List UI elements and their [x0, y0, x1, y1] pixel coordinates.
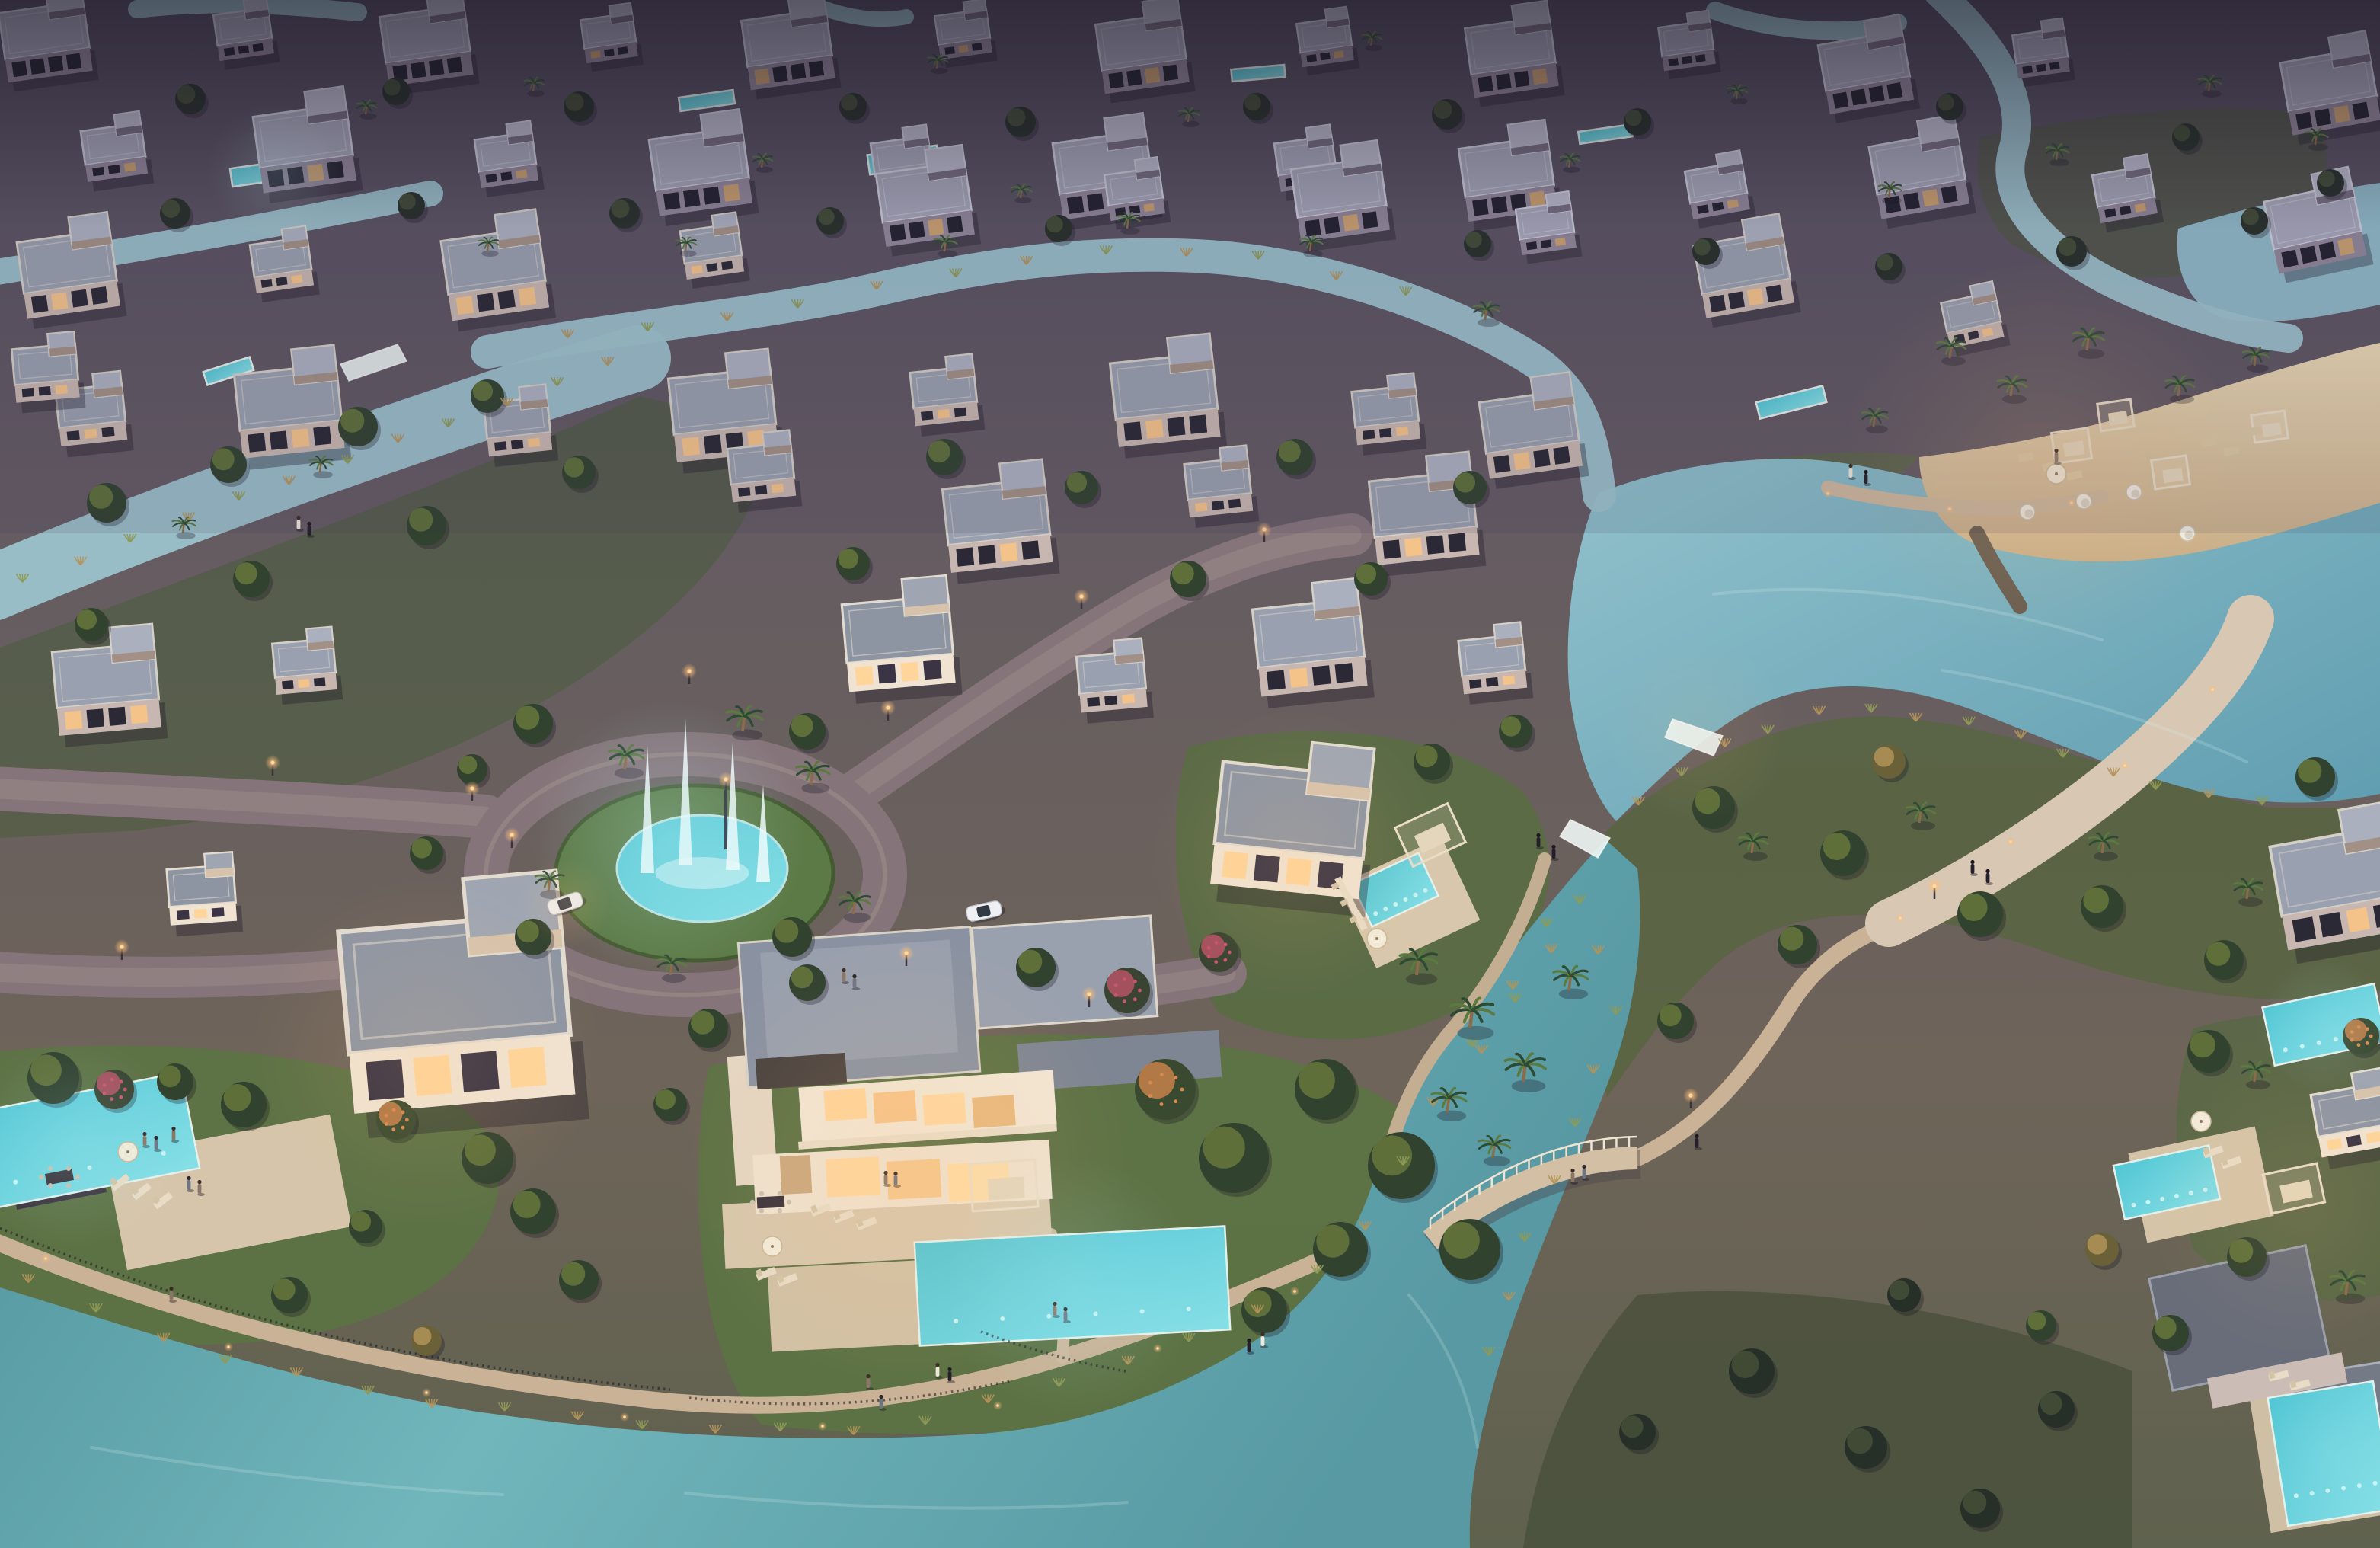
villa-window [108, 707, 126, 726]
villa-window [1335, 663, 1354, 683]
bollard-light [1293, 1290, 1296, 1293]
tree-highlight [2088, 1234, 2107, 1254]
bollard-light [2123, 764, 2126, 767]
palm-shadow [2094, 852, 2118, 861]
street-lamp [470, 786, 474, 790]
villa-window [130, 705, 149, 724]
villa-window [923, 660, 942, 680]
tree-highlight [691, 1011, 714, 1035]
tree-highlight [656, 1089, 676, 1109]
person-shadow [169, 1300, 177, 1303]
bollard-light [2009, 840, 2012, 843]
tree-highlight [1660, 1004, 1682, 1026]
person-head [1695, 1134, 1698, 1138]
bollard-light [821, 1425, 824, 1428]
person-shadow [1247, 1351, 1254, 1354]
tree-highlight [1890, 1280, 1909, 1300]
palm-shadow [1911, 821, 1935, 830]
person [1986, 873, 1990, 883]
palm-shadow [844, 913, 871, 923]
tree-highlight [235, 562, 257, 584]
villa-window [1122, 694, 1135, 704]
person [170, 1291, 174, 1300]
tree-highlight [458, 756, 477, 774]
person-shadow [1570, 1182, 1578, 1185]
villa-window [1021, 540, 1040, 559]
person-shadow [1985, 882, 1993, 885]
person-head [169, 1287, 173, 1291]
person-head [1582, 1165, 1586, 1169]
blossom [1133, 997, 1137, 1001]
person-head [1536, 833, 1540, 837]
person [1583, 1169, 1586, 1179]
bollard-light [623, 1415, 626, 1418]
blossom [1133, 980, 1137, 983]
tree-highlight [1299, 1062, 1335, 1099]
palm-shadow [801, 783, 829, 794]
tree-highlight [2083, 888, 2109, 913]
street-lamp [270, 760, 274, 764]
tree-highlight [561, 1262, 585, 1286]
villa-window [1426, 535, 1445, 554]
person [198, 1184, 202, 1194]
tree-highlight [2040, 1393, 2062, 1415]
blossom [1138, 989, 1142, 993]
villa-window [282, 680, 294, 689]
villa-window [1312, 665, 1331, 685]
villa-window [1289, 667, 1308, 687]
blossom [1114, 983, 1118, 987]
tree-highlight [1316, 1225, 1349, 1258]
blossom [1160, 1102, 1164, 1106]
tree-highlight [1107, 970, 1135, 997]
person-shadow [1536, 846, 1544, 849]
villa-window [177, 910, 190, 920]
villa-window [978, 545, 996, 564]
tree-highlight [2155, 1316, 2177, 1339]
villa-window [1503, 676, 1515, 686]
person-head [1260, 1332, 1264, 1336]
tree-highlight [1960, 894, 1988, 921]
person [1537, 837, 1541, 847]
person-shadow [197, 1193, 205, 1196]
street-lamp [687, 669, 691, 673]
palm-shadow [1484, 1156, 1510, 1166]
person-head [1970, 860, 1974, 864]
villa-window [877, 664, 896, 683]
street-lamp [1688, 1093, 1692, 1097]
villa-window [1267, 670, 1286, 690]
blossom [1174, 1076, 1178, 1079]
person-head [197, 1180, 201, 1184]
person-shadow [1970, 873, 1978, 876]
blossom [1174, 1099, 1177, 1103]
tree-highlight [412, 838, 432, 858]
person [1552, 849, 1556, 859]
villa-window [1469, 679, 1481, 689]
villa-window [1000, 542, 1018, 561]
villa-window [956, 547, 974, 566]
villa-window [314, 677, 326, 686]
tree-highlight [2027, 1312, 2046, 1330]
ambient-glow [1607, 640, 1790, 823]
person [1695, 1138, 1699, 1148]
tree-highlight [1501, 716, 1521, 736]
tree-highlight [1443, 1222, 1480, 1259]
villa-window [1104, 696, 1117, 705]
person-head [1551, 845, 1555, 849]
person-head [187, 1176, 190, 1180]
person-head [879, 1395, 883, 1399]
villa-window [2319, 912, 2343, 937]
street-lamp [1087, 992, 1091, 996]
bollard-light [1899, 916, 1902, 920]
tree-highlight [224, 1084, 251, 1111]
street-lamp [886, 705, 890, 709]
person-shadow [187, 1189, 194, 1192]
blossom [1148, 1081, 1152, 1085]
blossom [1180, 1088, 1184, 1092]
palm-shadow [1406, 973, 1438, 985]
person [1248, 1342, 1251, 1352]
villa-window [1382, 539, 1401, 558]
tree-highlight [1963, 1491, 1986, 1514]
bollard-light [227, 1345, 230, 1348]
tree-highlight [1847, 1428, 1873, 1454]
palm-shadow [2238, 897, 2263, 907]
tree-highlight [77, 609, 97, 629]
person-shadow [879, 1408, 887, 1411]
person [1571, 1172, 1575, 1182]
palm-shadow [1512, 1079, 1546, 1092]
street-lamp [120, 945, 123, 948]
tree-highlight [1621, 1415, 1644, 1438]
bollard-light [44, 1257, 47, 1260]
person-shadow [1582, 1178, 1589, 1181]
tree-highlight [791, 715, 813, 737]
tree-highlight [1780, 927, 1803, 951]
bollard-light [425, 1391, 428, 1394]
tree-highlight [413, 1327, 431, 1345]
top-vignette [0, 0, 2380, 229]
tree-highlight [1874, 747, 1894, 766]
villa-window [1486, 677, 1498, 687]
villa-window [65, 711, 83, 730]
bollard-light [2211, 688, 2214, 691]
person-head [1985, 869, 1989, 873]
tree-highlight [1203, 1127, 1245, 1169]
villa-window [1087, 697, 1100, 707]
layer-atmosphere [0, 0, 2380, 533]
person [880, 1399, 883, 1409]
tree-highlight [1172, 562, 1194, 584]
tree-highlight [1732, 1351, 1759, 1378]
ambient-glow [943, 1156, 1202, 1415]
blossom [1123, 977, 1126, 981]
person-head [1570, 1169, 1574, 1172]
tree-highlight [2206, 942, 2230, 966]
tree-highlight [1372, 1135, 1412, 1175]
person-shadow [1695, 1147, 1702, 1150]
person [1261, 1336, 1265, 1346]
blossom [1148, 1094, 1152, 1098]
villa-window [900, 662, 919, 682]
person-shadow [1260, 1345, 1268, 1348]
person [1971, 864, 1975, 874]
bollard-light [996, 1404, 999, 1407]
tree-highlight [2298, 760, 2321, 783]
tree-highlight [1139, 1062, 1175, 1099]
villa-window [298, 679, 310, 688]
tree-highlight [516, 706, 539, 730]
palm-shadow [1743, 852, 1768, 861]
render-canvas [0, 0, 2380, 1548]
person-shadow [307, 535, 315, 538]
palm-shadow [1559, 989, 1588, 999]
palm-shadow [1437, 1111, 1466, 1121]
person-head [1247, 1339, 1251, 1342]
villa-window [2346, 907, 2370, 932]
villa-window [194, 909, 207, 919]
villa-window [855, 666, 874, 686]
villa-window [1448, 533, 1466, 552]
blossom [1123, 999, 1126, 1003]
street-lamp [1932, 884, 1936, 888]
person-shadow [1551, 858, 1559, 861]
street-lamp [1079, 594, 1083, 598]
ambient-glow [1150, 708, 1439, 998]
tree-highlight [775, 920, 798, 943]
tree-highlight [2190, 1032, 2215, 1058]
street-lamp [510, 833, 513, 836]
villa-window [212, 907, 225, 917]
tree-highlight [1823, 833, 1851, 860]
blossom [1160, 1073, 1164, 1076]
villa-window [2292, 916, 2316, 942]
ambient-glow [519, 858, 611, 949]
palm-shadow [1458, 1026, 1494, 1040]
blossom [1114, 993, 1118, 997]
villa-window [1404, 537, 1423, 556]
tree-highlight [159, 1065, 181, 1087]
tree-highlight [839, 549, 858, 568]
villa-window [86, 708, 104, 728]
tree-highlight [1416, 745, 1438, 767]
person [187, 1180, 191, 1190]
tree-highlight [1356, 564, 1376, 584]
aerial-villa-community-render [0, 0, 2380, 1548]
tree-highlight [273, 1278, 296, 1300]
